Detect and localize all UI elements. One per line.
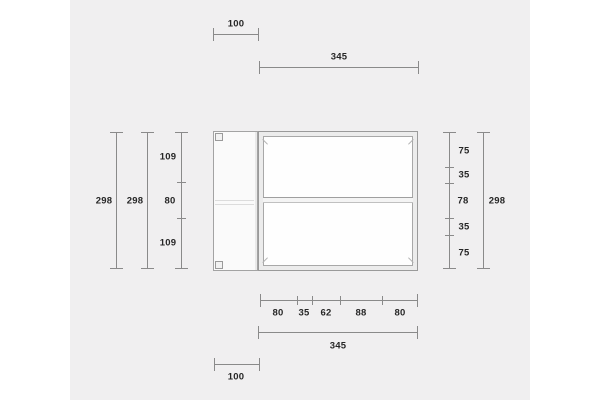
dim-label-left-seg-2: 80 [165,196,176,207]
dim-line-bottom-segmented [260,300,418,301]
dim-tick [445,235,454,236]
miter-joint-line [262,257,268,263]
dim-tick [445,218,454,219]
dim-label-right-seg-1: 75 [459,146,470,157]
dim-label-top-width: 345 [331,52,347,63]
dim-label-left-seg-1: 109 [160,152,176,163]
dim-line-bottom-offset [214,364,260,365]
dim-tick [177,218,186,219]
dim-tick [177,182,186,183]
object-shelf-divider [263,197,413,203]
dim-label-left-outer: 298 [96,196,112,207]
dim-label-right-seg-2: 35 [459,170,470,181]
dim-label-bottom-width: 345 [330,341,346,352]
dim-line-right-segmented [449,132,450,269]
panel-groove-line [215,204,254,205]
dim-label-bottom-seg-3: 62 [321,308,332,319]
object-main-frame [258,131,418,271]
dim-label-bottom-seg-5: 80 [395,308,406,319]
dim-label-bottom-offset: 100 [228,372,244,383]
dim-line-left-outer [116,132,117,269]
dim-label-bottom-seg-1: 80 [273,308,284,319]
dim-tick [340,296,341,305]
dim-line-bottom-width [258,332,418,333]
dim-label-top-offset: 100 [228,19,244,30]
dim-tick [297,296,298,305]
dim-tick [445,167,454,168]
dim-tick [312,296,313,305]
dim-label-right-total: 298 [489,196,505,207]
technical-drawing-stage: 100 345 298 298 109 80 109 75 35 78 35 7… [0,0,600,400]
dim-label-left-seg-3: 109 [160,238,176,249]
dim-label-right-seg-5: 75 [459,248,470,259]
dim-tick [445,183,454,184]
dim-label-bottom-seg-4: 88 [356,308,367,319]
dim-label-right-seg-4: 35 [459,222,470,233]
dim-line-right-total [483,132,484,269]
corner-peg-top [215,133,223,141]
corner-peg-bottom [215,261,223,269]
dim-line-left-inner [147,132,148,269]
dim-label-right-seg-3: 78 [458,196,469,207]
miter-joint-line [408,257,414,263]
dim-line-left-segmented [181,132,182,269]
dim-line-top-width [259,67,419,68]
dim-line-top-offset [213,34,259,35]
miter-joint-line [262,139,268,145]
miter-joint-line [408,139,414,145]
dim-tick [382,296,383,305]
object-side-panel [213,131,258,271]
dim-label-left-inner: 298 [127,196,143,207]
dim-label-bottom-seg-2: 35 [299,308,310,319]
panel-groove-line [215,200,254,201]
